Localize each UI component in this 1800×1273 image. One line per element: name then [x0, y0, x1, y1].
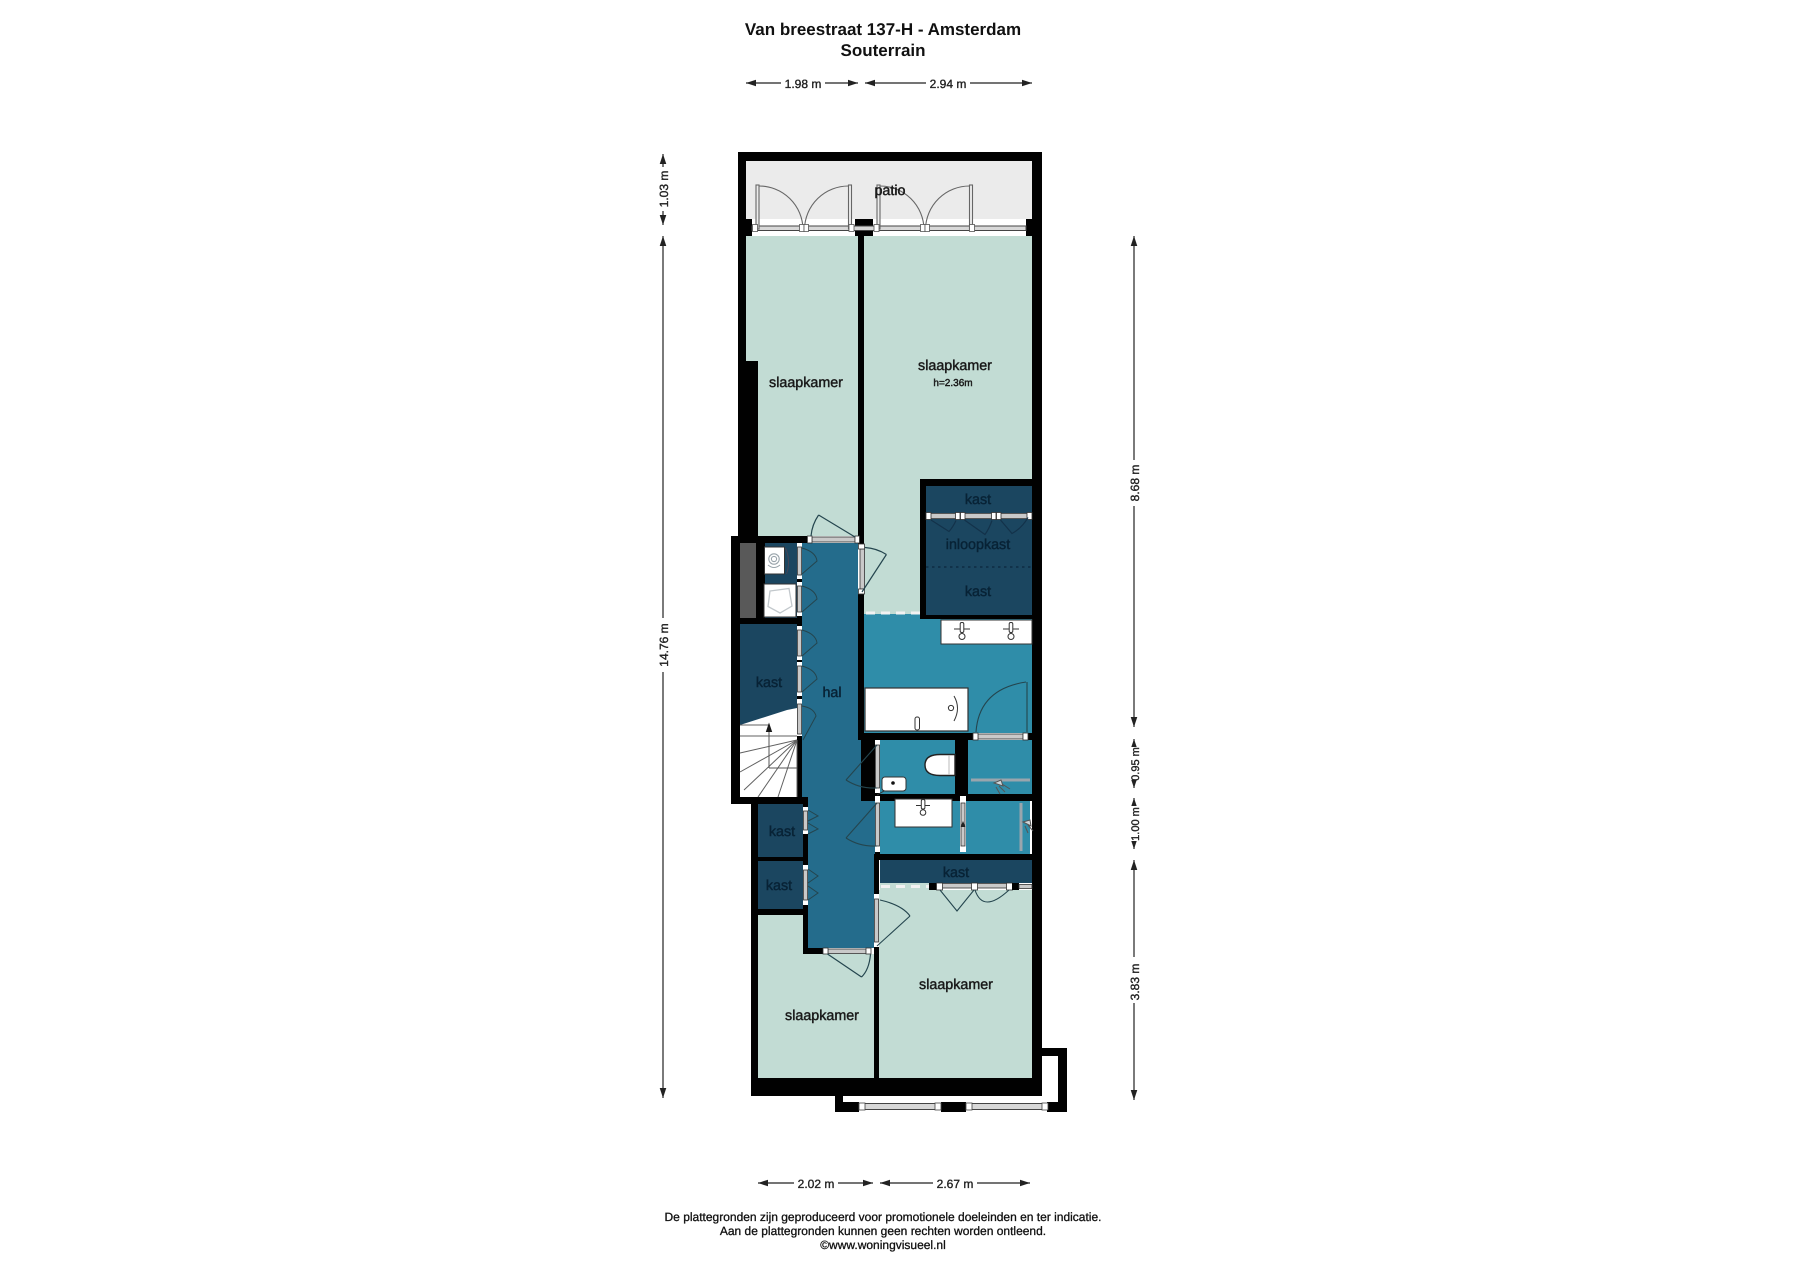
svg-text:2.02 m: 2.02 m: [798, 1177, 835, 1191]
svg-text:14.76 m: 14.76 m: [657, 623, 671, 666]
svg-text:kast: kast: [943, 865, 969, 881]
svg-text:1.03 m: 1.03 m: [657, 171, 671, 208]
svg-text:0.95 m: 0.95 m: [1130, 747, 1142, 781]
svg-text:kast: kast: [965, 584, 991, 600]
svg-text:De plattegronden zijn geproduc: De plattegronden zijn geproduceerd voor …: [665, 1210, 1102, 1224]
svg-text:8.68 m: 8.68 m: [1128, 465, 1142, 502]
svg-text:slaapkamer: slaapkamer: [785, 1008, 859, 1024]
svg-text:kast: kast: [766, 878, 792, 894]
svg-text:3.83 m: 3.83 m: [1128, 964, 1142, 1001]
svg-text:inloopkast: inloopkast: [946, 537, 1010, 553]
svg-text:2.94 m: 2.94 m: [930, 77, 967, 91]
svg-text:slaapkamer: slaapkamer: [918, 358, 992, 374]
svg-text:patio: patio: [874, 183, 905, 199]
svg-text:slaapkamer: slaapkamer: [769, 375, 843, 391]
svg-text:hal: hal: [822, 685, 841, 701]
svg-text:kast: kast: [965, 492, 991, 508]
svg-text:1.00 m: 1.00 m: [1130, 807, 1142, 841]
svg-text:Aan de plattegronden kunnen ge: Aan de plattegronden kunnen geen rechten…: [720, 1224, 1046, 1238]
svg-text:Van breestraat 137-H - Amsterd: Van breestraat 137-H - Amsterdam: [745, 20, 1021, 39]
svg-text:kast: kast: [769, 824, 795, 840]
svg-text:Souterrain: Souterrain: [840, 41, 925, 60]
svg-text:slaapkamer: slaapkamer: [919, 977, 993, 993]
svg-text:2.67 m: 2.67 m: [937, 1177, 974, 1191]
svg-text:kast: kast: [756, 675, 782, 691]
svg-text:h=2.36m: h=2.36m: [933, 378, 972, 389]
svg-text:1.98 m: 1.98 m: [785, 77, 822, 91]
svg-text:©www.woningvisueel.nl: ©www.woningvisueel.nl: [820, 1238, 946, 1252]
